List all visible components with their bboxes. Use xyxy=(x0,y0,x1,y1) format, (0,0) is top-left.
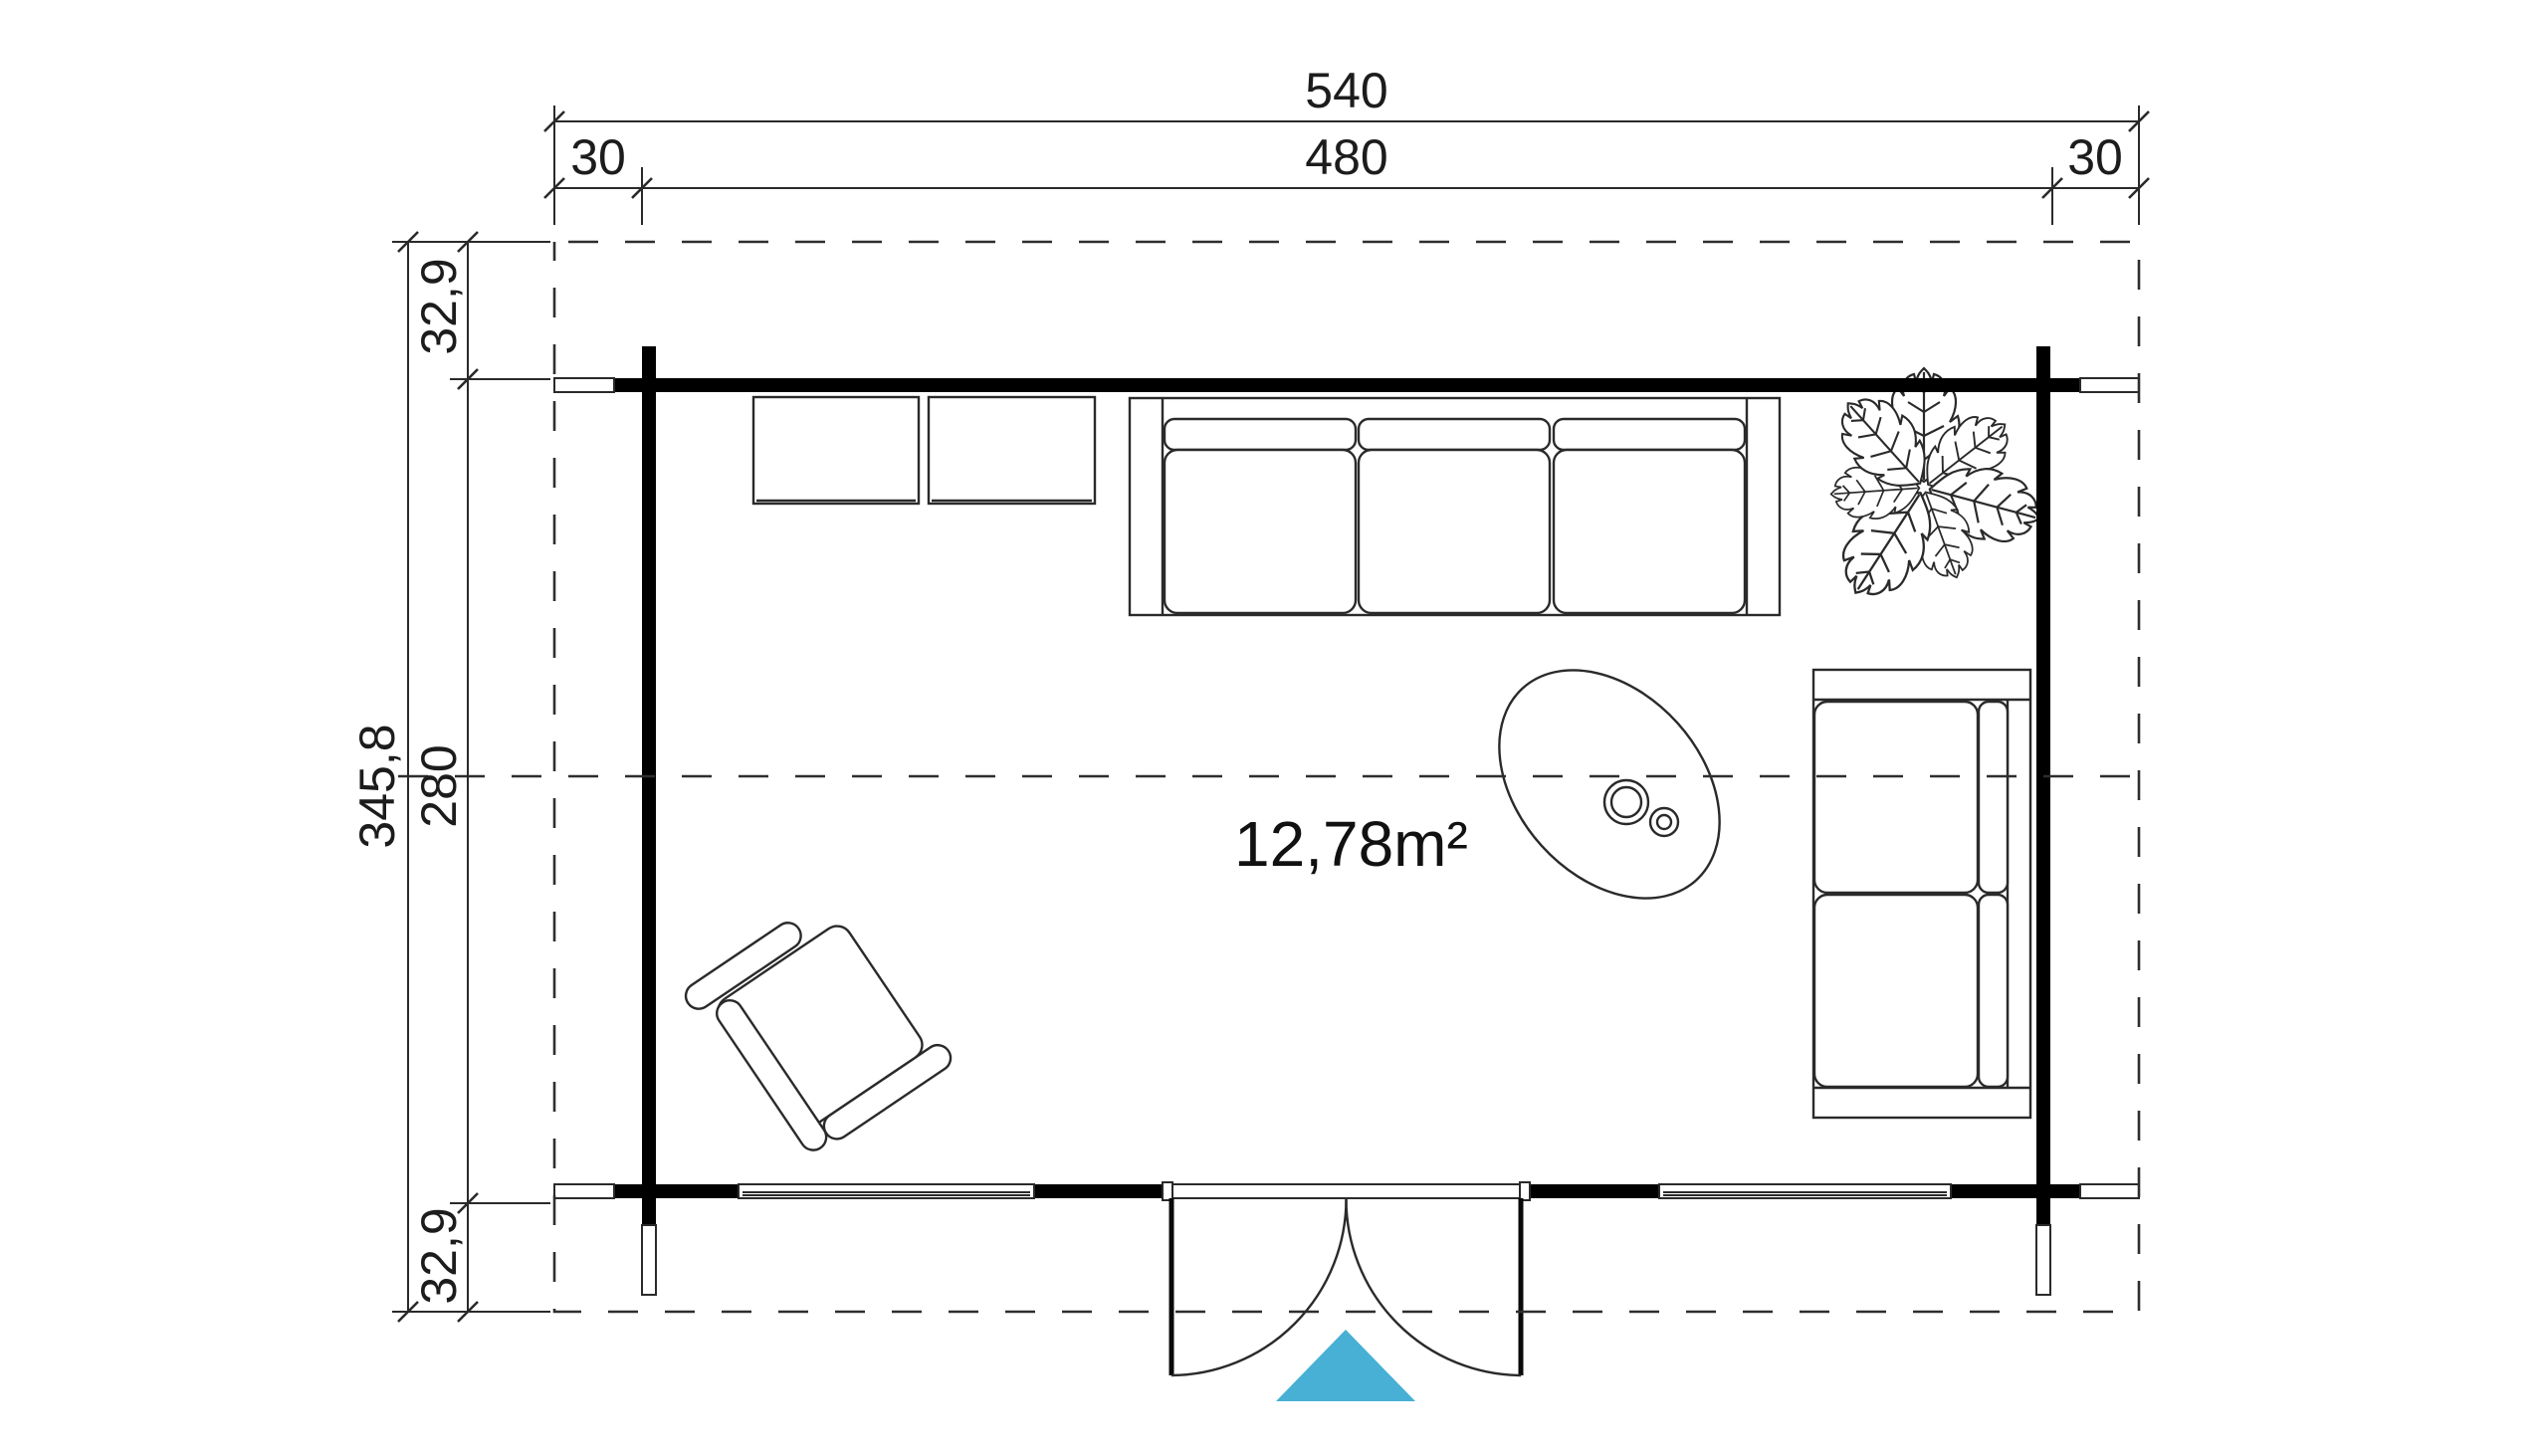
door-swing-arc-right xyxy=(1346,1199,1521,1375)
armchair xyxy=(681,887,955,1167)
oval-coffee-table xyxy=(1455,627,1765,941)
dim-total-width-label: 540 xyxy=(1305,63,1387,118)
dim-bottom-overhang-label: 32,9 xyxy=(411,1207,467,1304)
wall-bottom-3 xyxy=(1530,1184,1659,1198)
door-threshold xyxy=(1171,1184,1521,1198)
wall-top xyxy=(614,378,2080,392)
floor-plan-canvas: 540 30 480 30 345,8 32,9 280 32,9 12,78m… xyxy=(0,0,2548,1456)
beam-bottom-right xyxy=(2080,1184,2139,1198)
floor-plan-drawing: 540 30 480 30 345,8 32,9 280 32,9 12,78m… xyxy=(0,0,2548,1456)
post-foot-right xyxy=(2036,1225,2050,1295)
post-foot-left xyxy=(642,1225,656,1295)
dim-body-width-label: 480 xyxy=(1305,129,1387,185)
wall-bottom-1 xyxy=(614,1184,739,1198)
dim-top-overhang-label: 32,9 xyxy=(411,258,467,354)
sideboard-left xyxy=(753,397,919,504)
entrance-door xyxy=(1163,1182,1530,1401)
sideboard-right xyxy=(929,397,1095,504)
two-seat-sofa xyxy=(1813,670,2030,1118)
wall-right xyxy=(2036,346,2050,1225)
beam-top-right xyxy=(2080,378,2139,392)
dim-right-overhang-label: 30 xyxy=(2067,129,2123,185)
wall-left xyxy=(642,346,656,1225)
three-seat-sofa xyxy=(1130,398,1780,615)
window-bottom-right xyxy=(1659,1184,1951,1198)
beam-bottom-left xyxy=(554,1184,614,1198)
window-bottom-left xyxy=(739,1184,1034,1198)
beam-top-left xyxy=(554,378,614,392)
dim-left-overhang-label: 30 xyxy=(570,129,626,185)
door-jamb-left xyxy=(1163,1182,1172,1200)
entrance-arrow-icon xyxy=(1276,1330,1415,1401)
door-swing-arc-left xyxy=(1171,1199,1347,1375)
floor-area-label: 12,78m² xyxy=(1234,808,1468,880)
dim-total-depth-label: 345,8 xyxy=(349,724,405,848)
wall-bottom-2 xyxy=(1034,1184,1163,1198)
door-jamb-right xyxy=(1520,1182,1530,1200)
dim-body-depth-label: 280 xyxy=(411,744,467,827)
furniture-layer xyxy=(681,368,2048,1167)
wall-bottom-4 xyxy=(1951,1184,2080,1198)
potted-plant-icon xyxy=(1823,368,2048,613)
